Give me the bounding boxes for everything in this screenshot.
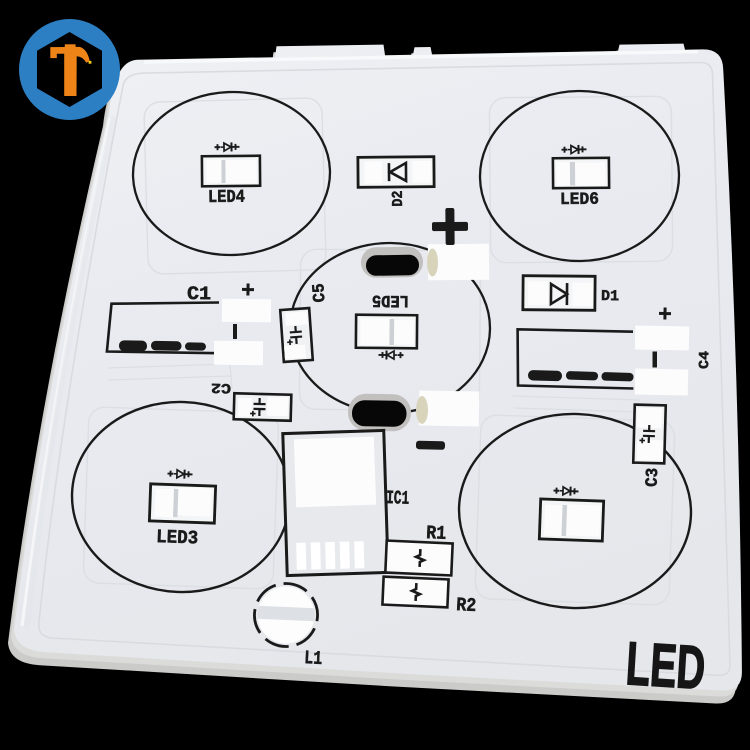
svg-text:D1: D1 [601, 288, 619, 305]
svg-text:LED5: LED5 [372, 290, 409, 309]
svg-text:LED6: LED6 [560, 191, 599, 210]
svg-text:LED4: LED4 [208, 188, 245, 208]
svg-text:C2: C2 [211, 379, 231, 396]
svg-text:LED3: LED3 [156, 526, 199, 549]
svg-text:LED: LED [624, 629, 707, 702]
svg-text:L1: L1 [304, 647, 323, 670]
svg-text:R2: R2 [456, 594, 477, 617]
svg-text:C4: C4 [697, 351, 713, 369]
svg-text:IC1: IC1 [386, 487, 410, 510]
svg-text:D2: D2 [390, 190, 407, 206]
svg-text:R1: R1 [426, 522, 447, 545]
svg-text:C3: C3 [644, 468, 664, 488]
svg-text:C5: C5 [310, 283, 330, 303]
svg-text:C1: C1 [187, 283, 211, 305]
